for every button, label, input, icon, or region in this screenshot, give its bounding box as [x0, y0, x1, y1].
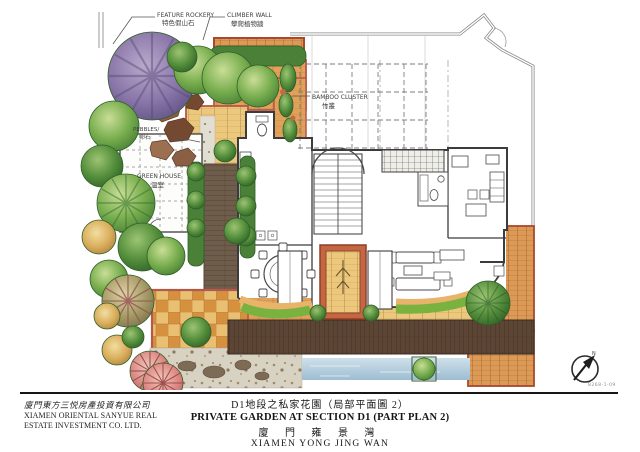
titleblock-rule	[20, 392, 618, 394]
project-name-cn: 廈 門 雍 景 灣	[0, 424, 640, 439]
greenhouse-label-cn: 溫室	[151, 180, 165, 189]
drawing-number: 8268-1-09	[588, 383, 616, 388]
feature-rockery-label-cn: 特色假山石	[162, 18, 195, 27]
drawing-title-cn: D1地段之私家花園（局部平面圖 2）	[0, 396, 640, 411]
side-path	[504, 226, 534, 332]
project-name-en: XIAMEN YONG JING WAN	[0, 439, 640, 449]
feature-rockery-label: FEATURE ROCKERY	[157, 12, 214, 19]
garden-plan-svg: FEATURE ROCKERY 特色假山石 CLIMBER WALL 攀爬植物牆…	[0, 0, 640, 390]
water-edge	[302, 358, 470, 380]
bathroom	[418, 172, 448, 206]
drawing-title-block: D1地段之私家花園（局部平面圖 2） PRIVATE GARDEN AT SEC…	[0, 396, 640, 449]
climber-wall-label-cn: 攀爬植物牆	[231, 19, 264, 28]
plan-drawing: FEATURE ROCKERY 特色假山石 CLIMBER WALL 攀爬植物牆…	[0, 0, 640, 390]
pebbles-label: PEBBLES/	[133, 127, 159, 133]
skylight-grille	[382, 150, 444, 172]
west-wall	[99, 12, 103, 48]
pergola-grid	[298, 64, 428, 150]
drawing-title-en: PRIVATE GARDEN AT SECTION D1 (PART PLAN …	[0, 412, 640, 423]
fireplace-feature	[320, 245, 366, 319]
north-arrow: N	[572, 351, 598, 382]
scanned-plan-sheet: FEATURE ROCKERY 特色假山石 CLIMBER WALL 攀爬植物牆…	[0, 0, 640, 452]
pebbles-label-cn: 卵石	[139, 133, 151, 141]
north-label: N	[592, 351, 596, 357]
climber-wall-label: CLIMBER WALL	[227, 12, 273, 19]
bamboo-cluster-label-cn: 竹叢	[322, 101, 336, 110]
greenhouse-label: GREEN HOUSE	[137, 173, 181, 180]
bamboo-cluster-label: BAMBOO CLUSTER	[312, 94, 368, 101]
